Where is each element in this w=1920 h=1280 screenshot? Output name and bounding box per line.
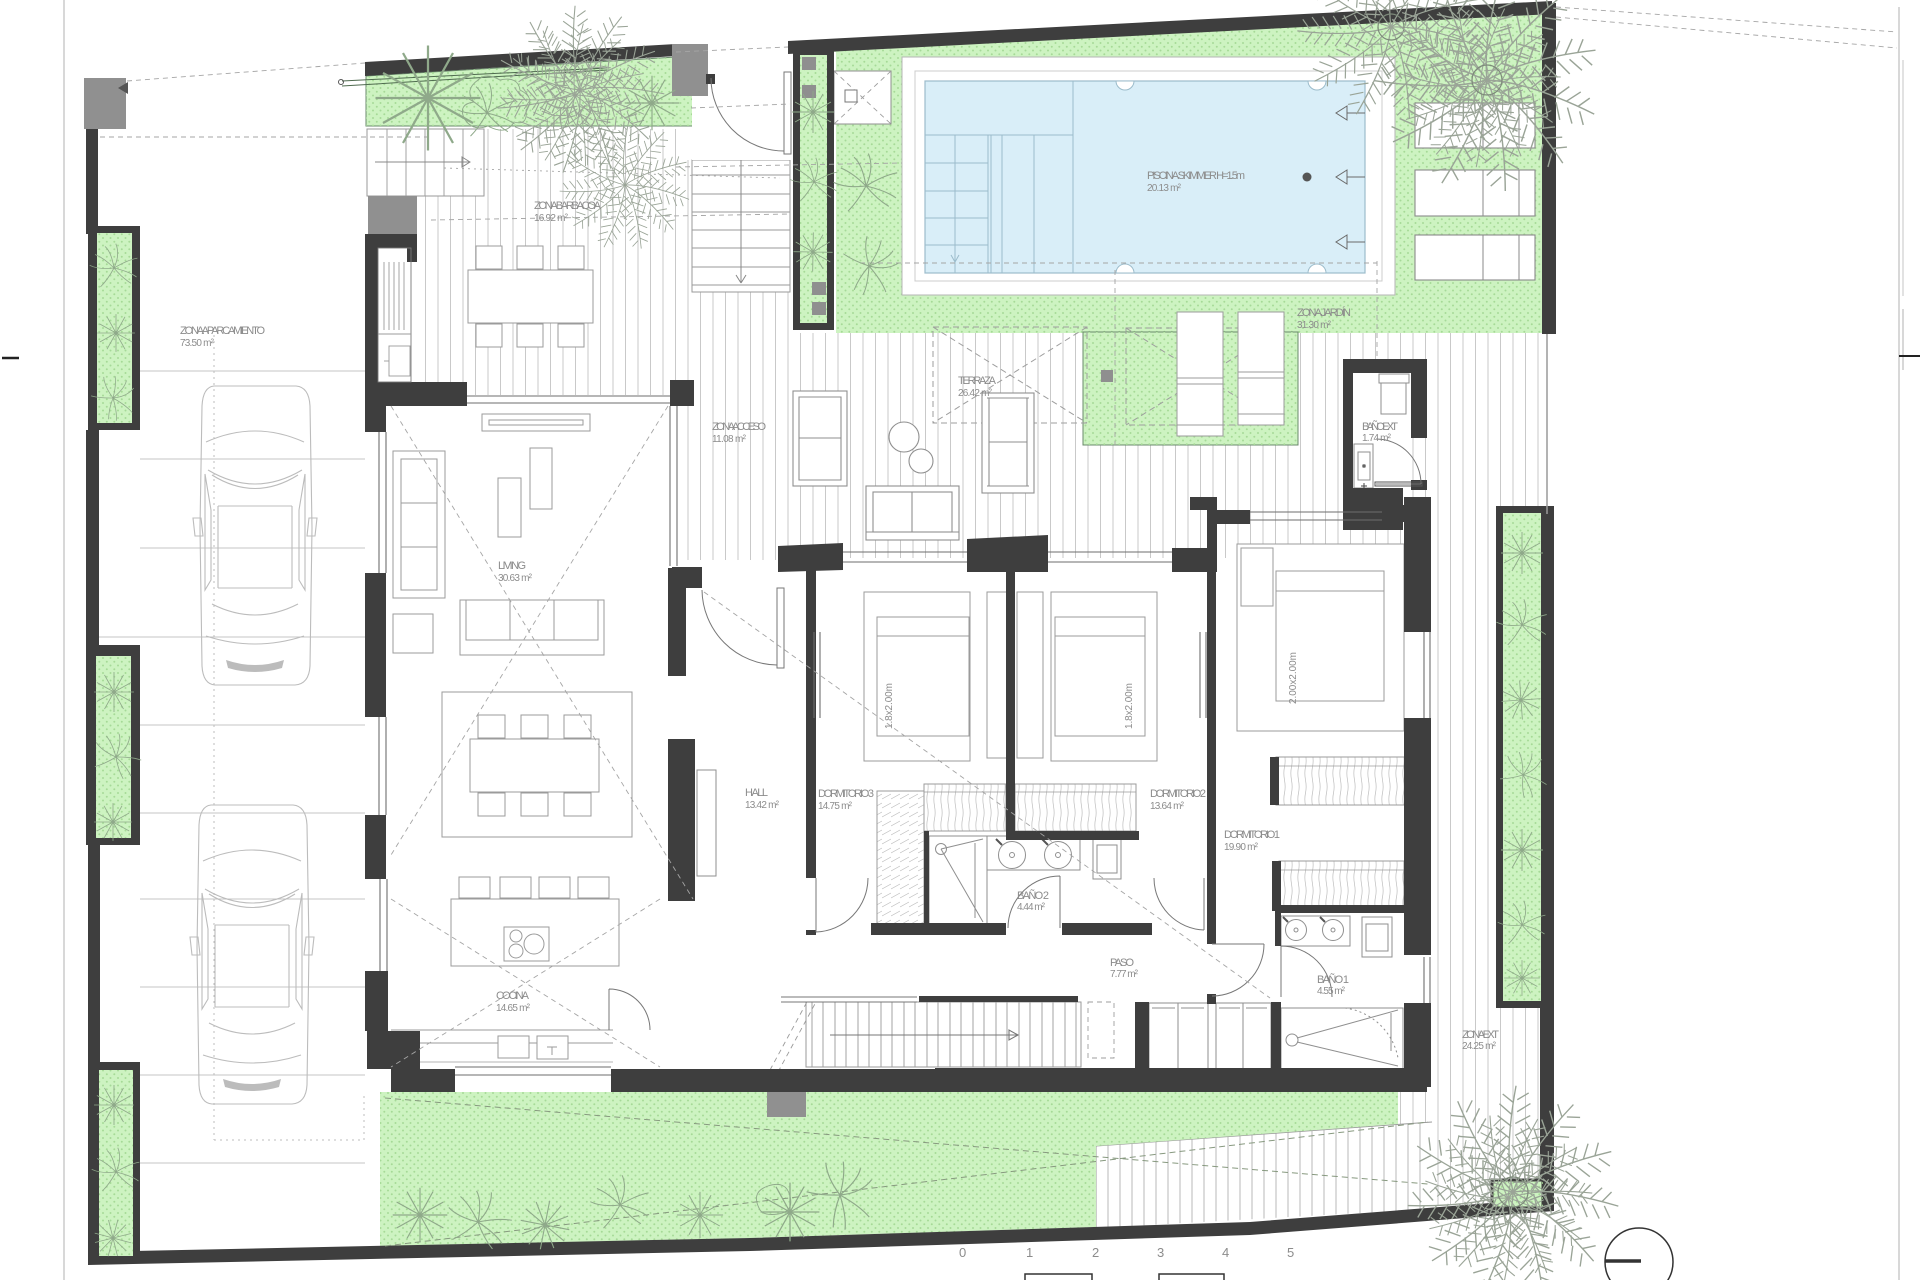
svg-text:LIVING: LIVING: [498, 560, 526, 572]
svg-text:24.25 m²: 24.25 m²: [1462, 1041, 1497, 1052]
svg-text:1: 1: [1026, 1245, 1033, 1260]
svg-text:ZONA APARCAMIENTO: ZONA APARCAMIENTO: [180, 325, 265, 337]
svg-text:4.55 m²: 4.55 m²: [1317, 986, 1346, 997]
svg-text:DORMITORIO 3: DORMITORIO 3: [818, 788, 874, 800]
svg-text:ZONA ACCESO: ZONA ACCESO: [712, 421, 766, 433]
svg-text:COCINA: COCINA: [496, 990, 530, 1002]
svg-text:DORMITORIO 2: DORMITORIO 2: [1150, 788, 1206, 800]
svg-text:73.50 m²: 73.50 m²: [180, 338, 215, 349]
svg-text:3: 3: [1157, 1245, 1164, 1260]
svg-text:PASO: PASO: [1110, 957, 1134, 969]
svg-text:0: 0: [959, 1245, 966, 1260]
svg-text:1.8x2.00m: 1.8x2.00m: [1124, 683, 1135, 729]
svg-text:1.74 m²: 1.74 m²: [1362, 433, 1392, 444]
svg-text:HALL: HALL: [745, 787, 768, 799]
svg-text:4.44 m²: 4.44 m²: [1017, 902, 1046, 913]
svg-text:4: 4: [1222, 1245, 1229, 1260]
svg-text:16.92 m²: 16.92 m²: [534, 213, 569, 224]
svg-text:13.42 m²: 13.42 m²: [745, 800, 780, 811]
svg-text:26.42 m²: 26.42 m²: [958, 388, 993, 399]
svg-text:13.64 m²: 13.64 m²: [1150, 801, 1185, 812]
svg-text:DORMITORIO 1: DORMITORIO 1: [1224, 829, 1280, 841]
svg-text:2: 2: [1092, 1245, 1099, 1260]
svg-text:BAÑO 1: BAÑO 1: [1317, 973, 1349, 986]
svg-text:BAÑO 2: BAÑO 2: [1017, 889, 1049, 902]
svg-text:2.00x2.00m: 2.00x2.00m: [1288, 652, 1299, 704]
svg-text:ZONA JARDÍN: ZONA JARDÍN: [1297, 306, 1351, 319]
svg-text:31.30 m²: 31.30 m²: [1297, 320, 1332, 331]
svg-text:20.13 m²: 20.13 m²: [1147, 183, 1182, 194]
svg-text:ZONA EXT: ZONA EXT: [1462, 1029, 1499, 1041]
svg-text:19.90 m²: 19.90 m²: [1224, 842, 1259, 853]
svg-text:11.08 m²: 11.08 m²: [712, 434, 747, 445]
svg-text:PISCINA SKIMMER H=1.5m: PISCINA SKIMMER H=1.5m: [1147, 170, 1245, 182]
svg-text:ZONA BARBACOA: ZONA BARBACOA: [534, 200, 602, 212]
svg-text:5: 5: [1287, 1245, 1294, 1260]
svg-text:1.8x2.00m: 1.8x2.00m: [884, 683, 895, 729]
svg-text:14.75 m²: 14.75 m²: [818, 801, 853, 812]
svg-text:BAÑO EXT: BAÑO EXT: [1362, 420, 1398, 433]
svg-text:7.77 m²: 7.77 m²: [1110, 969, 1139, 980]
svg-text:30.63 m²: 30.63 m²: [498, 573, 533, 584]
svg-text:14.65 m²: 14.65 m²: [496, 1003, 531, 1014]
svg-text:TERRAZA: TERRAZA: [958, 375, 997, 387]
